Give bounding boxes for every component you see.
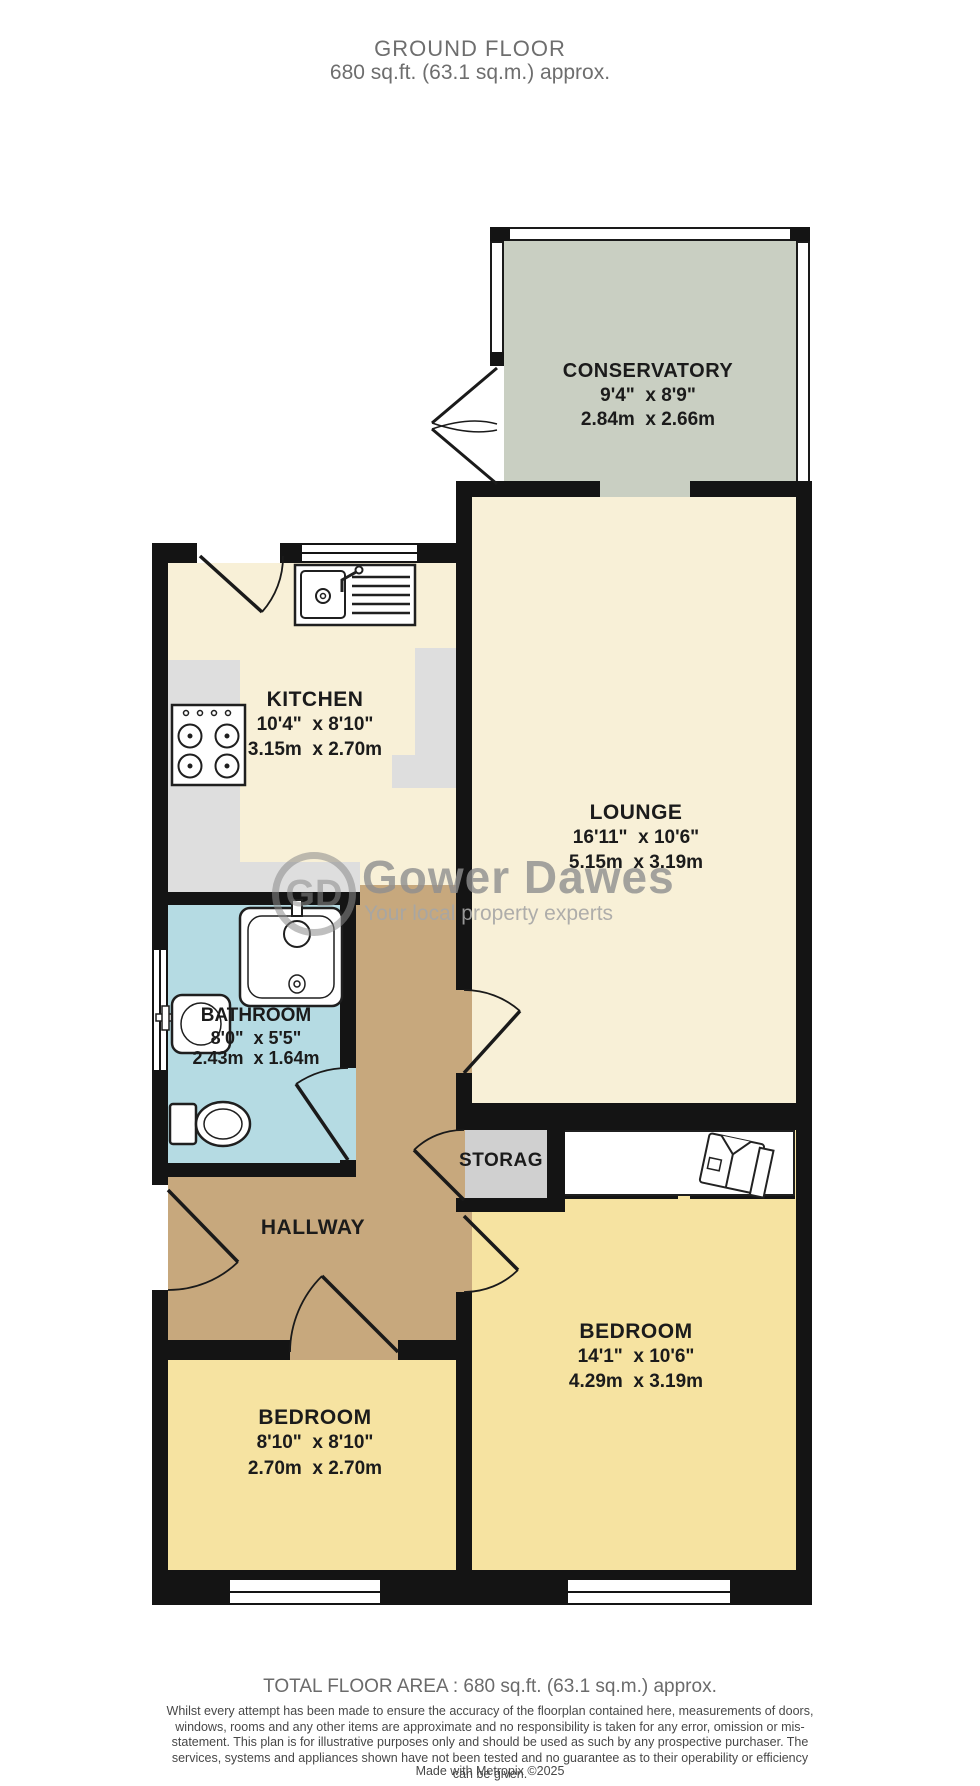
- lounge-dim-imperial: 16'11" x 10'6": [573, 828, 699, 849]
- kitchen-sink-icon: [295, 565, 415, 625]
- hallway-label: HALLWAY: [261, 1216, 365, 1239]
- floorplan: GROUND FLOOR 680 sq.ft. (63.1 sq.m.) app…: [0, 0, 980, 1786]
- bathroom-dim-imperial: 8'0" x 5'5": [211, 1029, 302, 1049]
- conservatory-label: CONSERVATORY: [563, 360, 733, 382]
- bedroom-right-dim-metric: 4.29m x 3.19m: [569, 1372, 703, 1393]
- watermark-name: Gower Dawes: [362, 850, 675, 904]
- storage-door: [414, 1130, 464, 1200]
- front-door: [168, 1190, 238, 1290]
- bedroom-right-door: [464, 1216, 518, 1292]
- conservatory-dim-metric: 2.84m x 2.66m: [581, 410, 715, 431]
- bedroom-right-dim-imperial: 14'1" x 10'6": [578, 1347, 695, 1368]
- bathroom-label: BATHROOM: [201, 1006, 311, 1027]
- bedroom-left-door: [290, 1276, 398, 1352]
- toilet-icon: [170, 1102, 250, 1146]
- bedroom-left-dim-metric: 2.70m x 2.70m: [248, 1459, 382, 1480]
- bathroom-door: [296, 1068, 348, 1160]
- conservatory-french-doors: [432, 368, 497, 484]
- storage-label: STORAG: [459, 1151, 543, 1172]
- kitchen-door: [200, 556, 283, 612]
- stove-icon: [172, 705, 245, 785]
- bedroom-left-label: BEDROOM: [258, 1406, 371, 1429]
- kitchen-label: KITCHEN: [267, 688, 364, 711]
- kitchen-dim-metric: 3.15m x 2.70m: [248, 740, 382, 761]
- conservatory-dim-imperial: 9'4" x 8'9": [600, 386, 696, 407]
- shirt-icon: [699, 1133, 774, 1198]
- kitchen-dim-imperial: 10'4" x 8'10": [257, 715, 374, 736]
- lounge-door: [464, 990, 520, 1073]
- watermark-logo-icon: GD: [272, 852, 356, 936]
- lounge-label: LOUNGE: [590, 801, 683, 824]
- watermark-tagline: Your local property experts: [364, 902, 613, 926]
- bedroom-right-label: BEDROOM: [579, 1320, 692, 1343]
- bedroom-left-dim-imperial: 8'10" x 8'10": [257, 1433, 374, 1454]
- bathroom-dim-metric: 2.43m x 1.64m: [192, 1049, 319, 1069]
